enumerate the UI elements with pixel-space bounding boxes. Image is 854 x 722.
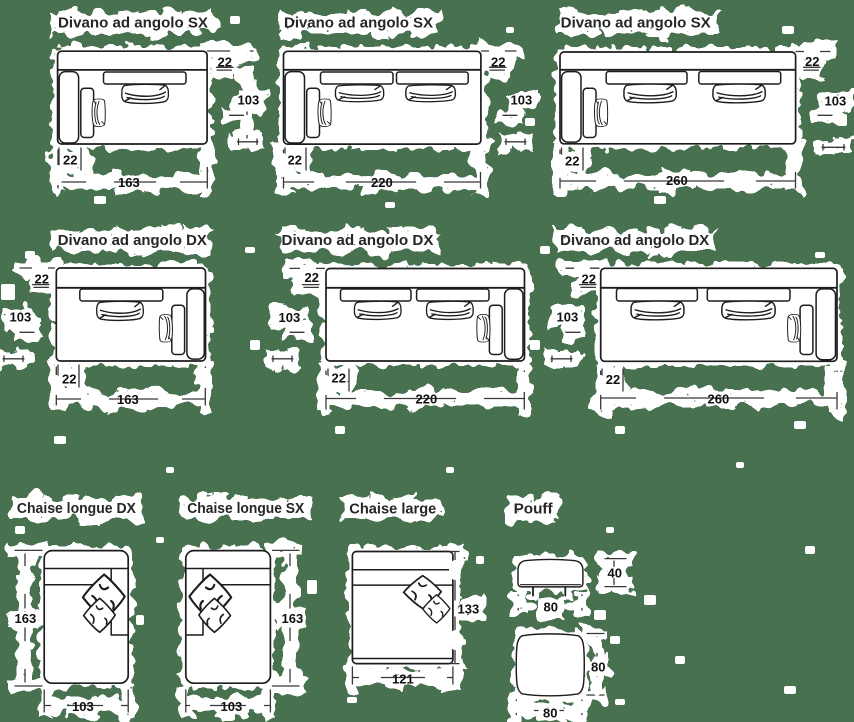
svg-text:22: 22 [218, 55, 232, 70]
svg-text:22: 22 [63, 153, 77, 168]
svg-text:80: 80 [543, 706, 557, 721]
svg-text:22: 22 [62, 372, 76, 387]
svg-text:Divano ad angolo DX: Divano ad angolo DX [282, 233, 434, 249]
svg-text:Chaise longue SX: Chaise longue SX [187, 501, 304, 517]
svg-text:22: 22 [805, 54, 819, 69]
svg-text:80: 80 [591, 660, 605, 675]
svg-text:163: 163 [282, 611, 304, 626]
svg-text:40: 40 [608, 566, 622, 581]
svg-text:103: 103 [825, 94, 847, 109]
svg-text:22: 22 [288, 153, 302, 168]
svg-text:22: 22 [491, 55, 505, 70]
svg-text:103: 103 [238, 93, 260, 108]
svg-text:133: 133 [458, 602, 480, 617]
svg-text:103: 103 [10, 310, 32, 325]
svg-text:80: 80 [544, 600, 558, 615]
svg-text:103: 103 [279, 310, 301, 325]
svg-text:163: 163 [15, 611, 37, 626]
svg-text:Chaise large: Chaise large [349, 502, 436, 518]
svg-text:260: 260 [666, 173, 688, 188]
svg-text:260: 260 [708, 392, 730, 407]
svg-text:Divano ad angolo DX: Divano ad angolo DX [560, 233, 709, 249]
svg-text:103: 103 [511, 93, 533, 108]
svg-text:103: 103 [557, 310, 579, 325]
svg-text:Divano ad angolo DX: Divano ad angolo DX [58, 233, 207, 249]
svg-text:22: 22 [606, 372, 620, 387]
svg-text:103: 103 [221, 699, 243, 714]
svg-text:22: 22 [332, 371, 346, 386]
svg-text:Divano ad angolo SX: Divano ad angolo SX [561, 16, 711, 32]
svg-text:220: 220 [371, 175, 393, 190]
svg-text:220: 220 [416, 392, 438, 407]
svg-text:121: 121 [392, 672, 414, 687]
svg-text:22: 22 [582, 271, 596, 286]
svg-text:22: 22 [565, 154, 579, 169]
svg-text:Divano ad angolo SX: Divano ad angolo SX [58, 16, 208, 32]
svg-text:103: 103 [72, 699, 94, 714]
svg-text:163: 163 [118, 175, 140, 190]
svg-text:163: 163 [117, 392, 139, 407]
svg-text:Pouff: Pouff [514, 502, 553, 518]
svg-text:22: 22 [35, 272, 49, 287]
svg-text:Chaise longue DX: Chaise longue DX [17, 501, 136, 517]
svg-text:Divano ad angolo SX: Divano ad angolo SX [284, 16, 433, 32]
